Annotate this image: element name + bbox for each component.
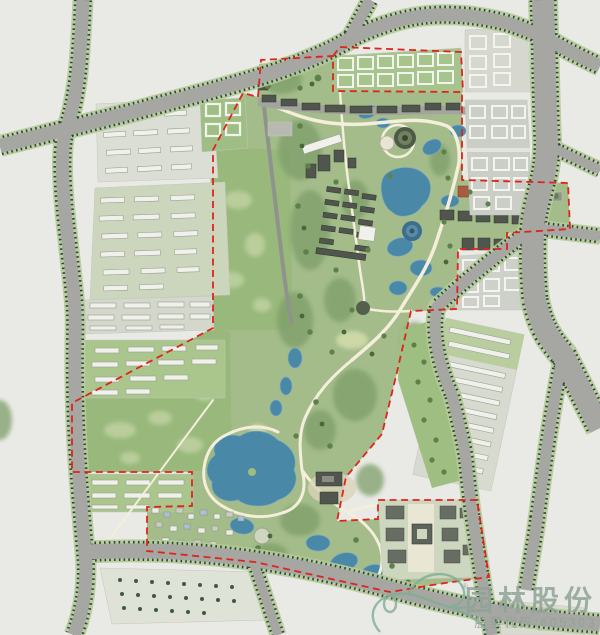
site-plan-canvas: ® 园林股份 股票代码:605303 xyxy=(0,0,600,635)
north-courtyard-block xyxy=(200,98,248,152)
lake-islet xyxy=(248,468,256,476)
orchard-parcel xyxy=(100,568,268,624)
stock-code: 股票代码:605303 xyxy=(474,616,597,630)
south-temple-complex xyxy=(308,472,356,504)
east-urban-blocks xyxy=(465,100,533,215)
northeast-courtyard-strip xyxy=(333,48,463,92)
round-pond-plaza xyxy=(402,221,422,241)
northwest-parcel-lower xyxy=(83,296,214,334)
company-name: 园林股份 xyxy=(465,585,597,616)
parking-lot xyxy=(268,122,292,136)
master-plan-map: ® 园林股份 股票代码:605303 xyxy=(0,0,600,635)
northwest-parcel-middle xyxy=(90,182,230,300)
small-circle-plaza xyxy=(356,301,370,315)
